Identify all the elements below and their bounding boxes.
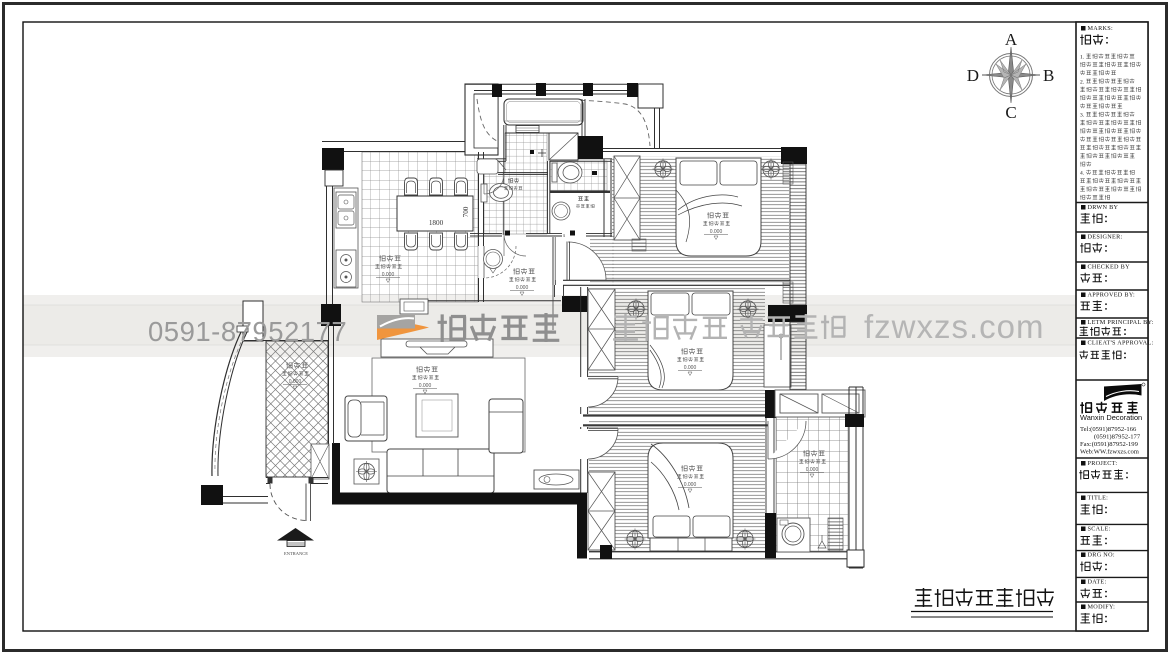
svg-text:SCALE:: SCALE:	[1088, 526, 1111, 533]
svg-text:APPROVED BY:: APPROVED BY:	[1088, 292, 1136, 299]
svg-text:D: D	[967, 66, 979, 85]
svg-text:A: A	[1005, 30, 1018, 49]
svg-text:TITLE:: TITLE:	[1088, 495, 1109, 502]
svg-text:Fax:(0591)87952-199: Fax:(0591)87952-199	[1080, 441, 1139, 448]
svg-text:CLIEAT'S APPROVAL:: CLIEAT'S APPROVAL:	[1088, 340, 1154, 347]
svg-text:LETM PRINCIPAL BY:: LETM PRINCIPAL BY:	[1088, 319, 1154, 326]
svg-text:Tel:(0591)87952-166: Tel:(0591)87952-166	[1080, 426, 1137, 433]
svg-text:4.: 4.	[1080, 171, 1085, 177]
svg-text:DRG NO:: DRG NO:	[1088, 552, 1115, 559]
svg-text:0.000: 0.000	[684, 482, 697, 488]
svg-text:B: B	[1043, 66, 1054, 85]
svg-text:0.000: 0.000	[419, 383, 432, 389]
svg-text:0.000: 0.000	[710, 229, 723, 235]
svg-text:ENTRANCE: ENTRANCE	[284, 551, 308, 556]
svg-text:C: C	[1005, 103, 1016, 122]
svg-text:DATE:: DATE:	[1088, 579, 1107, 586]
svg-text:Wanxin Decoration: Wanxin Decoration	[1080, 413, 1142, 422]
svg-text:DRWN BY: DRWN BY	[1088, 204, 1119, 211]
svg-text:0.000: 0.000	[684, 365, 697, 371]
svg-text:0.000: 0.000	[289, 379, 302, 385]
svg-text:(0591)87952-177: (0591)87952-177	[1094, 434, 1141, 441]
svg-text:2.: 2.	[1080, 79, 1085, 85]
svg-text:0.000: 0.000	[806, 467, 819, 473]
svg-text:DESIGNER:: DESIGNER:	[1088, 234, 1123, 241]
svg-text:PROJECT:: PROJECT:	[1088, 460, 1118, 467]
svg-text:1800: 1800	[429, 219, 444, 227]
svg-text:MODIFY:: MODIFY:	[1088, 604, 1116, 611]
svg-text:0591-87952177: 0591-87952177	[148, 316, 347, 347]
svg-text:3.: 3.	[1080, 113, 1085, 119]
svg-text:Web:WW.fzwxzs.com: Web:WW.fzwxzs.com	[1080, 449, 1140, 456]
svg-text:CHECKED BY: CHECKED BY	[1088, 264, 1131, 271]
svg-text:fzwxzs.com: fzwxzs.com	[864, 308, 1045, 345]
svg-text:1.: 1.	[1080, 55, 1085, 61]
svg-text:0.000: 0.000	[382, 272, 395, 278]
svg-text:MARKS:: MARKS:	[1088, 25, 1114, 32]
svg-text:700: 700	[462, 206, 470, 217]
svg-text:0.000: 0.000	[516, 285, 529, 291]
